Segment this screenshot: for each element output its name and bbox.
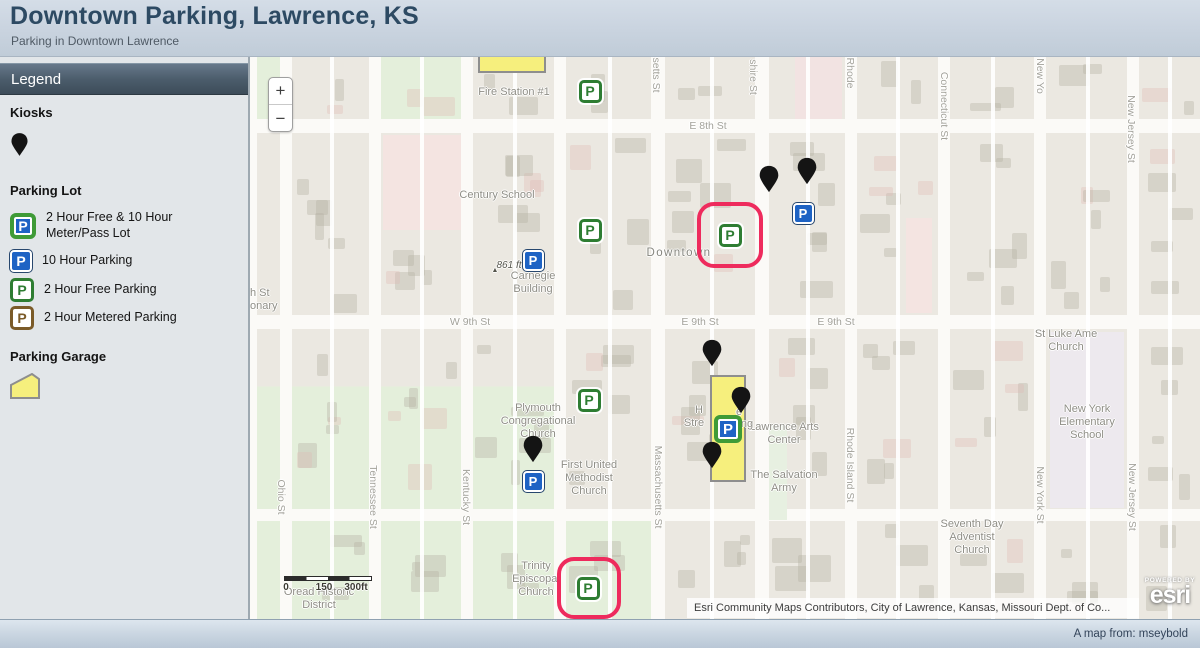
map-canvas[interactable]: + − 0 150 300ft Esri Community Maps Cont… [250, 57, 1200, 619]
marker-p-green[interactable]: P [579, 80, 602, 103]
basemap-building [307, 200, 329, 215]
basemap-building [1064, 292, 1079, 309]
basemap-building [967, 272, 983, 281]
map-label: ng [741, 418, 753, 431]
legend-item: P 2 Hour Free & 10 Hour Meter/Pass Lot [10, 210, 198, 241]
basemap-building [627, 219, 648, 245]
basemap-building [335, 79, 344, 101]
scale-bar: 0 150 300ft [284, 576, 372, 594]
garage-polygon-icon [10, 373, 41, 405]
map-label: ▲ [492, 267, 499, 275]
basemap-building [812, 232, 826, 252]
legend-section-parking-lot: Parking Lot [10, 183, 82, 198]
zoom-control: + − [268, 77, 293, 132]
parking-garage-polygon[interactable] [478, 57, 546, 73]
map-label: h St [250, 287, 270, 300]
marker-p-blue[interactable]: P [793, 203, 814, 224]
basemap-building [297, 452, 311, 468]
app-footer: A map from: mseybold [0, 619, 1200, 648]
street-label: Massachusetts St [652, 446, 664, 529]
basemap-building [1091, 210, 1101, 229]
basemap-building [860, 214, 890, 233]
legend-item-label: 2 Hour Metered Parking [44, 310, 177, 326]
basemap-building [740, 535, 749, 545]
scale-label: 300ft [344, 582, 367, 593]
zoom-in-button[interactable]: + [269, 78, 292, 105]
page-subtitle: Parking in Downtown Lawrence [11, 34, 179, 48]
basemap-building [1001, 286, 1014, 305]
page-title: Downtown Parking, Lawrence, KS [10, 2, 419, 31]
map-label: Stre [684, 417, 704, 430]
basemap-building [1007, 539, 1023, 563]
basemap-building [586, 353, 603, 371]
basemap-building [676, 159, 702, 184]
p-2hour-metered-icon: P [10, 306, 34, 330]
basemap-alley [806, 57, 810, 619]
street-label: shire St [747, 59, 759, 95]
basemap-building [333, 294, 358, 313]
basemap-building [953, 370, 984, 391]
basemap-alley [710, 57, 714, 619]
basemap-alley [608, 57, 612, 619]
basemap-building [422, 408, 447, 430]
street-label: Kentucky St [460, 469, 472, 525]
basemap-building [884, 463, 895, 479]
basemap-building [807, 368, 828, 389]
basemap-building [672, 211, 694, 233]
kiosk-pin-marker[interactable] [758, 165, 780, 193]
kiosk-pin-marker[interactable] [522, 435, 544, 463]
basemap-landuse [906, 218, 932, 313]
basemap-building [423, 97, 455, 116]
map-label: St Luke Ame Church [1035, 328, 1097, 354]
app-window: Downtown Parking, Lawrence, KS Parking i… [0, 0, 1200, 648]
p-meter-pass-icon: P [10, 213, 36, 239]
basemap-building [788, 338, 815, 354]
basemap-building [1152, 436, 1164, 444]
basemap-building [1169, 208, 1194, 221]
basemap-building [911, 80, 921, 104]
basemap-building [297, 179, 309, 195]
map-credit: A map from: mseybold [1074, 620, 1188, 648]
basemap-landuse [795, 57, 842, 119]
basemap-building [717, 139, 747, 151]
esri-wordmark: esri [1142, 584, 1198, 608]
street-label: Connecticut St [938, 72, 950, 140]
basemap-alley [896, 57, 900, 619]
street-label: E 9th St [681, 316, 718, 328]
legend-item-kiosk [10, 129, 29, 165]
basemap-building [475, 437, 497, 458]
marker-p-green[interactable]: P [578, 389, 601, 412]
basemap-building [1151, 281, 1180, 294]
basemap-building [613, 290, 633, 310]
street-label: Ohio St [275, 479, 287, 514]
basemap-building [477, 345, 491, 354]
street-label: W 9th St [450, 316, 490, 328]
basemap-building [505, 155, 533, 177]
basemap-building [896, 545, 928, 566]
street-label: E 8th St [689, 120, 726, 132]
kiosk-pin-icon [10, 129, 29, 165]
app-header: Downtown Parking, Lawrence, KS Parking i… [0, 0, 1200, 57]
basemap-building [779, 358, 795, 376]
basemap-building [1100, 277, 1111, 292]
basemap-building [970, 103, 1001, 111]
basemap-building [867, 459, 885, 484]
street-label: New York St [1034, 466, 1046, 523]
scale-label: 150 [316, 582, 333, 593]
basemap-building [1148, 173, 1176, 192]
p-2hour-free-icon: P [10, 278, 34, 302]
basemap-building [1179, 474, 1190, 500]
street-label: New Jersey St [1126, 463, 1138, 531]
map-label: Century School [459, 189, 534, 202]
basemap-building [1184, 101, 1194, 115]
street-label: E 9th St [817, 316, 854, 328]
marker-p-green[interactable]: P [579, 219, 602, 242]
basemap-building [992, 341, 1023, 361]
street-label: setts St [650, 57, 662, 92]
basemap-building [772, 538, 801, 563]
legend-section-kiosks: Kiosks [10, 105, 53, 120]
esri-logo: POWERED BY esri [1142, 577, 1198, 619]
basemap-building [678, 570, 694, 588]
legend-item: P 2 Hour Metered Parking [10, 306, 177, 330]
basemap-building [678, 88, 696, 101]
basemap-building [1061, 549, 1072, 558]
basemap-building [992, 573, 1024, 593]
map-label: The Salvation Army [750, 469, 817, 495]
kiosk-pin-marker[interactable] [701, 339, 723, 367]
basemap-building [869, 187, 893, 197]
zoom-out-button[interactable]: − [269, 105, 292, 132]
scale-label: 0 [283, 582, 289, 593]
kiosk-pin-marker[interactable] [730, 386, 752, 414]
map-label: 861 ft [496, 260, 521, 272]
basemap-building [918, 181, 933, 195]
legend-header: Legend [0, 63, 248, 95]
basemap-building [317, 354, 328, 376]
street-label: Rhode Island St [844, 428, 856, 503]
basemap-alley [1168, 57, 1172, 619]
street-label: Rhode [844, 58, 856, 89]
basemap-building [404, 397, 416, 407]
map-label: New York Elementary School [1059, 403, 1115, 442]
basemap-building [955, 438, 977, 448]
map-label: Carnegie Building [511, 270, 556, 296]
map-attribution: Esri Community Maps Contributors, City o… [687, 598, 1139, 618]
basemap-building [668, 191, 691, 202]
p-10hour-icon: P [10, 250, 32, 272]
basemap-building [615, 138, 646, 153]
legend-section-parking-garage: Parking Garage [10, 349, 106, 364]
basemap-building [570, 145, 591, 171]
map-label: Lawrence Arts Center [749, 421, 819, 447]
map-label: onary [250, 300, 278, 313]
basemap-building [775, 566, 808, 591]
legend-item-label: 10 Hour Parking [42, 253, 132, 269]
legend-item: P 2 Hour Free Parking [10, 278, 157, 302]
basemap-building [1151, 347, 1183, 365]
basemap-building [386, 271, 400, 284]
street-label: New Jersey St [1125, 95, 1137, 163]
basemap-building [818, 183, 835, 206]
basemap-block [257, 521, 280, 619]
marker-p-blue[interactable]: P [523, 250, 544, 271]
marker-p-green[interactable]: P [719, 224, 742, 247]
map-label: Seventh Day Adventist Church [941, 518, 1004, 557]
basemap-building [354, 542, 365, 555]
basemap-building [1005, 384, 1024, 393]
marker-p-blue[interactable]: P [523, 471, 544, 492]
kiosk-pin-marker[interactable] [701, 441, 723, 469]
basemap-building [388, 411, 400, 421]
map-label: First United Methodist Church [561, 459, 617, 498]
legend-item-garage [10, 373, 41, 405]
basemap-alley [330, 57, 334, 619]
legend-item-label: 2 Hour Free & 10 Hour Meter/Pass Lot [46, 210, 198, 241]
basemap-building [874, 156, 897, 170]
map-label: Trinity Episcopal Church [512, 560, 560, 599]
legend-item: P 10 Hour Parking [10, 250, 132, 272]
legend-panel: Legend Kiosks Parking Lot P 2 Hour Free … [0, 57, 250, 619]
basemap-alley [420, 57, 424, 619]
map-label: H [695, 404, 703, 417]
basemap-building [800, 281, 833, 298]
basemap-building [863, 344, 879, 358]
basemap-building [446, 362, 457, 379]
street-label: Tennessee St [367, 465, 379, 529]
legend-item-label: 2 Hour Free Parking [44, 282, 157, 298]
marker-p-green[interactable]: P [577, 577, 600, 600]
street-label: New Yo [1034, 58, 1046, 94]
basemap-building [1051, 261, 1066, 289]
marker-p-green-blue[interactable]: P [714, 415, 742, 443]
map-label: Fire Station #1 [478, 86, 550, 99]
basemap-building [724, 541, 741, 567]
basemap-alley [513, 57, 517, 619]
kiosk-pin-marker[interactable] [796, 157, 818, 185]
basemap-building [790, 142, 814, 156]
